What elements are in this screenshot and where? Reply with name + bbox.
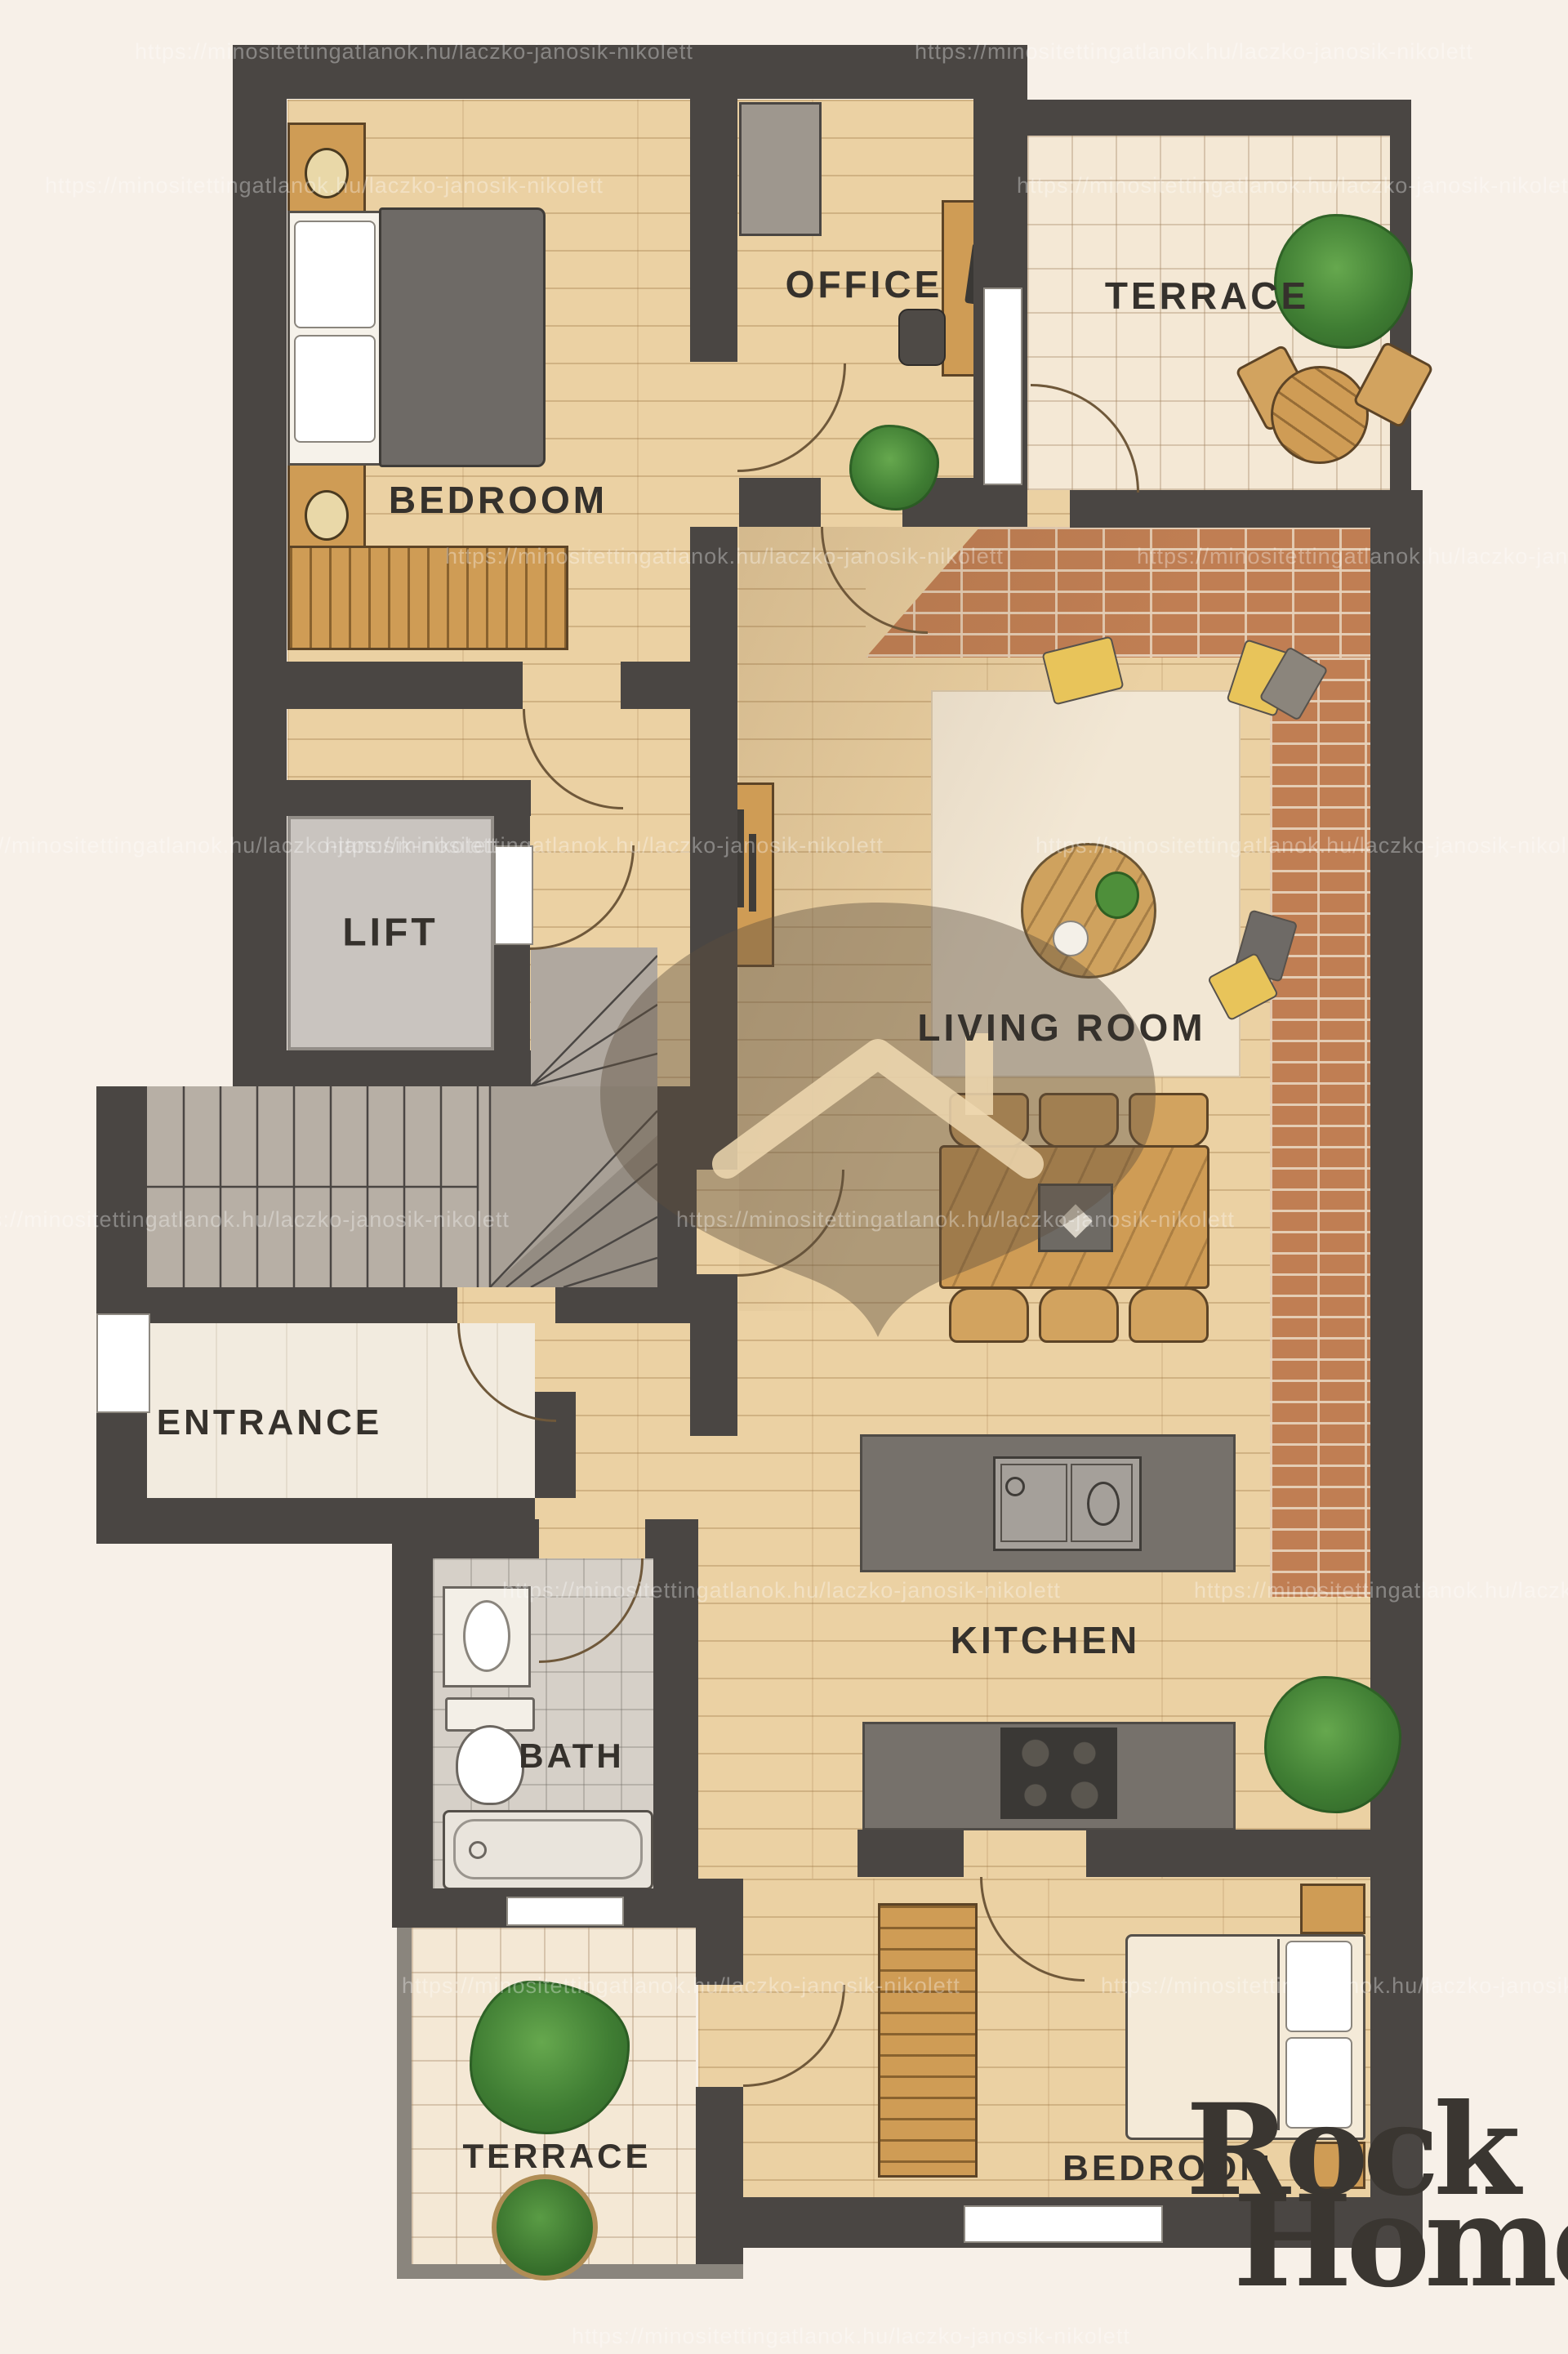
room-label-terrace-top: TERRACE	[1105, 274, 1309, 318]
room-label-bath: BATH	[519, 1737, 625, 1776]
nightstand	[287, 123, 366, 217]
kitchen-sink	[993, 1456, 1142, 1551]
room-label-entrance: ENTRANCE	[157, 1402, 382, 1443]
url-watermark: https://minositettingatlanok.hu/laczko-j…	[676, 1207, 1235, 1233]
agency-pin-watermark	[563, 894, 1192, 1344]
wall-office-bottom-left	[739, 478, 821, 527]
room-label-bedroom1: BEDROOM	[389, 478, 608, 522]
office-terrace-window	[983, 288, 1022, 485]
lift-door	[494, 845, 533, 945]
bed-duvet	[379, 207, 546, 467]
url-watermark: https://minositettingatlanok.hu/laczko-j…	[572, 2324, 1130, 2349]
room-label-office: OFFICE	[786, 262, 943, 306]
wall-bath-top-left	[392, 1519, 539, 1558]
wall-terrace-top	[1027, 100, 1411, 136]
url-watermark: https://minositettingatlanok.hu/laczko-j…	[1101, 1973, 1568, 1999]
url-watermark: https://minositettingatlanok.hu/laczko-j…	[325, 833, 884, 858]
wall-bath-left	[392, 1519, 433, 1928]
logo-home: Home	[1233, 2179, 1568, 2305]
potted-plant	[492, 2174, 598, 2280]
bathtub	[443, 1810, 653, 1890]
url-watermark: https://minositettingatlanok.hu/laczko-j…	[502, 1578, 1061, 1603]
office-chair	[898, 309, 946, 366]
url-watermark: https://minositettingatlanok.hu/laczko-j…	[445, 544, 1004, 569]
exterior-mask	[0, 1544, 397, 2354]
floor-plan-canvas: ◆ BEDROOM OFFICE	[0, 0, 1568, 2354]
entrance-door	[96, 1313, 150, 1413]
url-watermark: https://minositettingatlanok.hu/laczko-j…	[402, 1973, 960, 1999]
terrace-table	[1271, 366, 1369, 464]
bath-window	[506, 1897, 624, 1926]
pillow	[294, 221, 376, 328]
wall-bedroom-office	[690, 99, 737, 362]
url-watermark: https://minositettingatlanok.hu/laczko-j…	[1194, 1578, 1568, 1603]
wall-lift-bottom	[233, 1050, 531, 1086]
lamp-icon	[305, 490, 349, 541]
room-label-living-room: LIVING ROOM	[917, 1005, 1205, 1050]
pillow	[294, 335, 376, 443]
bed-bedroom1	[287, 211, 541, 461]
brick-strip	[1270, 658, 1370, 1597]
url-watermark: https://minositettingatlanok.hu/laczko-j…	[0, 1207, 510, 1233]
wall-kitchen-bottom-left	[857, 1830, 964, 1877]
bedroom2-window	[964, 2205, 1163, 2243]
office-closet	[739, 102, 822, 236]
url-watermark: https://minositettingatlanok.hu/laczko-j…	[45, 173, 604, 198]
url-watermark: https://minositettingatlanok.hu/laczko-j…	[1036, 833, 1568, 858]
nightstand	[1300, 1884, 1365, 1934]
sink-basin	[463, 1600, 510, 1672]
wall-terrace2-right-upper	[696, 1879, 743, 1985]
room-label-lift: LIFT	[342, 911, 438, 956]
sink-basin	[1000, 1464, 1067, 1542]
wall-entrance-top-left	[96, 1287, 457, 1323]
sink-basin	[1071, 1464, 1133, 1542]
url-watermark: https://minositettingatlanok.hu/laczko-j…	[1137, 544, 1568, 569]
wall-kitchen-bottom-right	[1086, 1830, 1370, 1877]
kitchen-island	[860, 1434, 1236, 1572]
url-watermark: https://minositettingatlanok.hu/laczko-j…	[915, 39, 1473, 65]
room-label-terrace-bottom: TERRACE	[462, 2137, 651, 2176]
kitchen-counter	[862, 1722, 1236, 1830]
wall-terrace2-right-lower	[696, 2087, 743, 2279]
drain-icon	[469, 1841, 487, 1859]
wall-bedroom-bottom-left	[233, 662, 523, 709]
url-watermark: https://minositettingatlanok.hu/laczko-j…	[1017, 173, 1568, 198]
wall-terrace-bottom	[1070, 490, 1423, 528]
wardrobe-bedroom2	[878, 1903, 978, 2178]
sink-drain	[1087, 1482, 1120, 1526]
cooktop-icon	[1000, 1728, 1117, 1819]
toilet-bowl	[456, 1725, 524, 1805]
url-watermark: https://minositettingatlanok.hu/laczko-j…	[135, 39, 693, 65]
bathtub-inner	[453, 1819, 643, 1879]
faucet-icon	[1005, 1477, 1025, 1496]
room-label-kitchen: KITCHEN	[951, 1618, 1140, 1662]
